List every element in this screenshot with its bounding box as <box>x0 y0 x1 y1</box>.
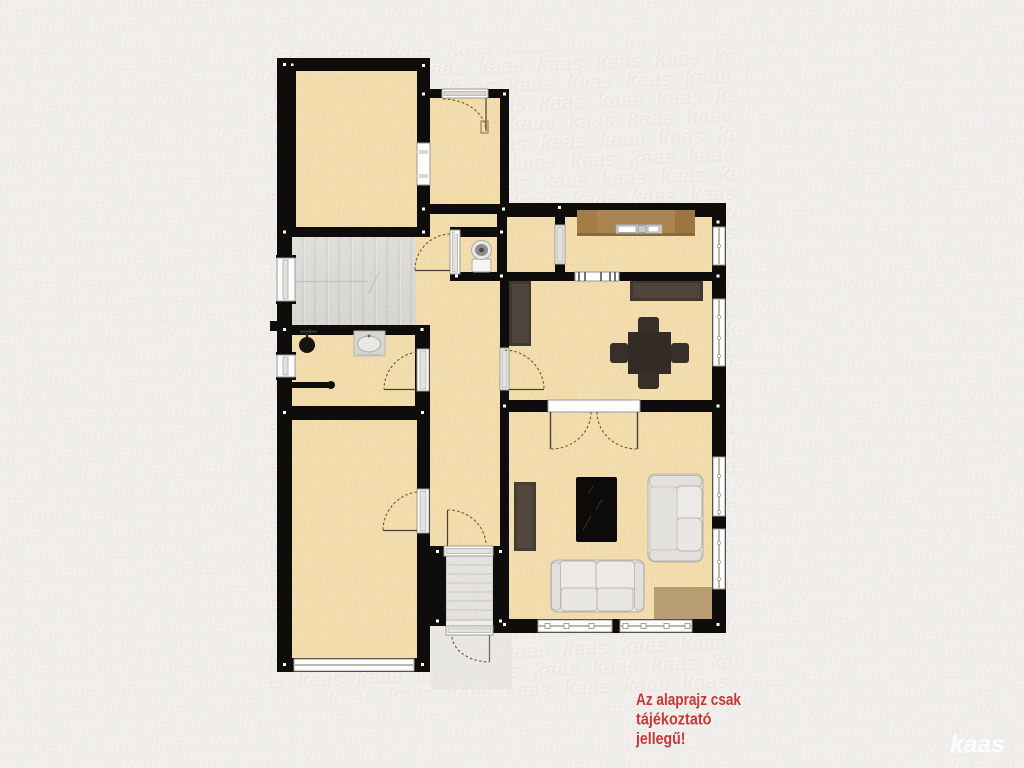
svg-text:kaas: kaas <box>950 731 1005 759</box>
svg-text:tájékoztató: tájékoztató <box>636 710 712 729</box>
svg-text:Az alaprajz csak: Az alaprajz csak <box>636 690 741 709</box>
svg-text:jellegű!: jellegű! <box>635 729 685 748</box>
